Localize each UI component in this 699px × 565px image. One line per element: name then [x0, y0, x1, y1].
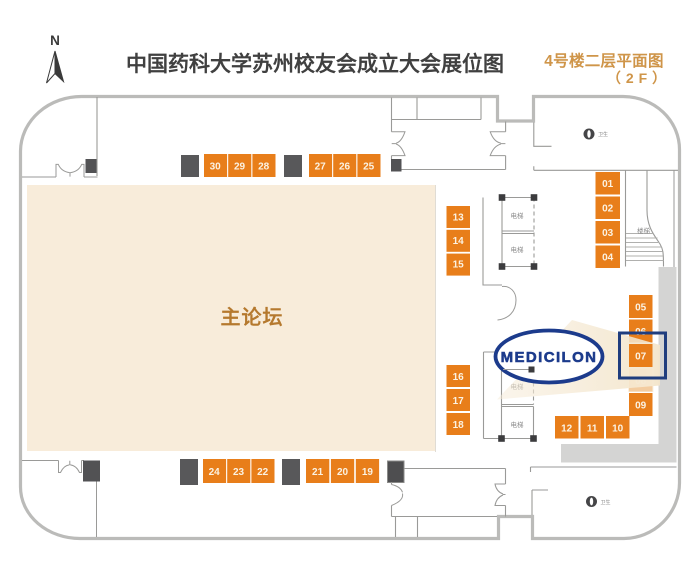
svg-text:楼梯: 楼梯: [637, 226, 651, 235]
svg-text:27: 27: [315, 162, 327, 173]
svg-text:21: 21: [312, 467, 324, 478]
svg-text:卫生: 卫生: [598, 131, 608, 138]
svg-text:29: 29: [234, 162, 246, 173]
svg-text:24: 24: [209, 467, 221, 478]
svg-text:28: 28: [258, 162, 270, 173]
svg-text:电梯: 电梯: [511, 211, 525, 220]
svg-text:05: 05: [635, 303, 647, 314]
svg-text:25: 25: [363, 162, 375, 173]
svg-text:03: 03: [602, 228, 614, 239]
svg-text:12: 12: [561, 424, 573, 435]
svg-text:18: 18: [453, 420, 465, 431]
svg-text:02: 02: [602, 204, 614, 215]
svg-text:卫生: 卫生: [601, 499, 611, 506]
svg-text:13: 13: [453, 213, 465, 224]
svg-text:14: 14: [453, 236, 465, 247]
svg-text:（2F）: （2F）: [607, 70, 671, 86]
svg-text:11: 11: [587, 424, 598, 435]
svg-text:16: 16: [453, 372, 465, 383]
svg-text:04: 04: [602, 253, 614, 264]
svg-text:19: 19: [362, 467, 374, 478]
svg-text:电梯: 电梯: [511, 420, 525, 429]
svg-text:MEDICILON: MEDICILON: [501, 349, 598, 366]
svg-text:N: N: [50, 33, 60, 48]
svg-text:26: 26: [339, 162, 351, 173]
svg-text:01: 01: [602, 179, 614, 190]
svg-text:17: 17: [453, 396, 465, 407]
svg-text:22: 22: [257, 467, 269, 478]
svg-text:30: 30: [210, 162, 222, 173]
svg-text:主论坛: 主论坛: [221, 305, 284, 329]
svg-text:23: 23: [233, 467, 245, 478]
svg-text:中国药科大学苏州校友会成立大会展位图: 中国药科大学苏州校友会成立大会展位图: [126, 52, 504, 76]
svg-text:07: 07: [635, 352, 647, 363]
svg-text:10: 10: [612, 424, 624, 435]
svg-text:20: 20: [337, 467, 349, 478]
svg-text:电梯: 电梯: [511, 245, 525, 254]
svg-text:09: 09: [635, 401, 647, 412]
svg-text:15: 15: [453, 260, 465, 271]
svg-text:4号楼二层平面图: 4号楼二层平面图: [544, 51, 664, 70]
